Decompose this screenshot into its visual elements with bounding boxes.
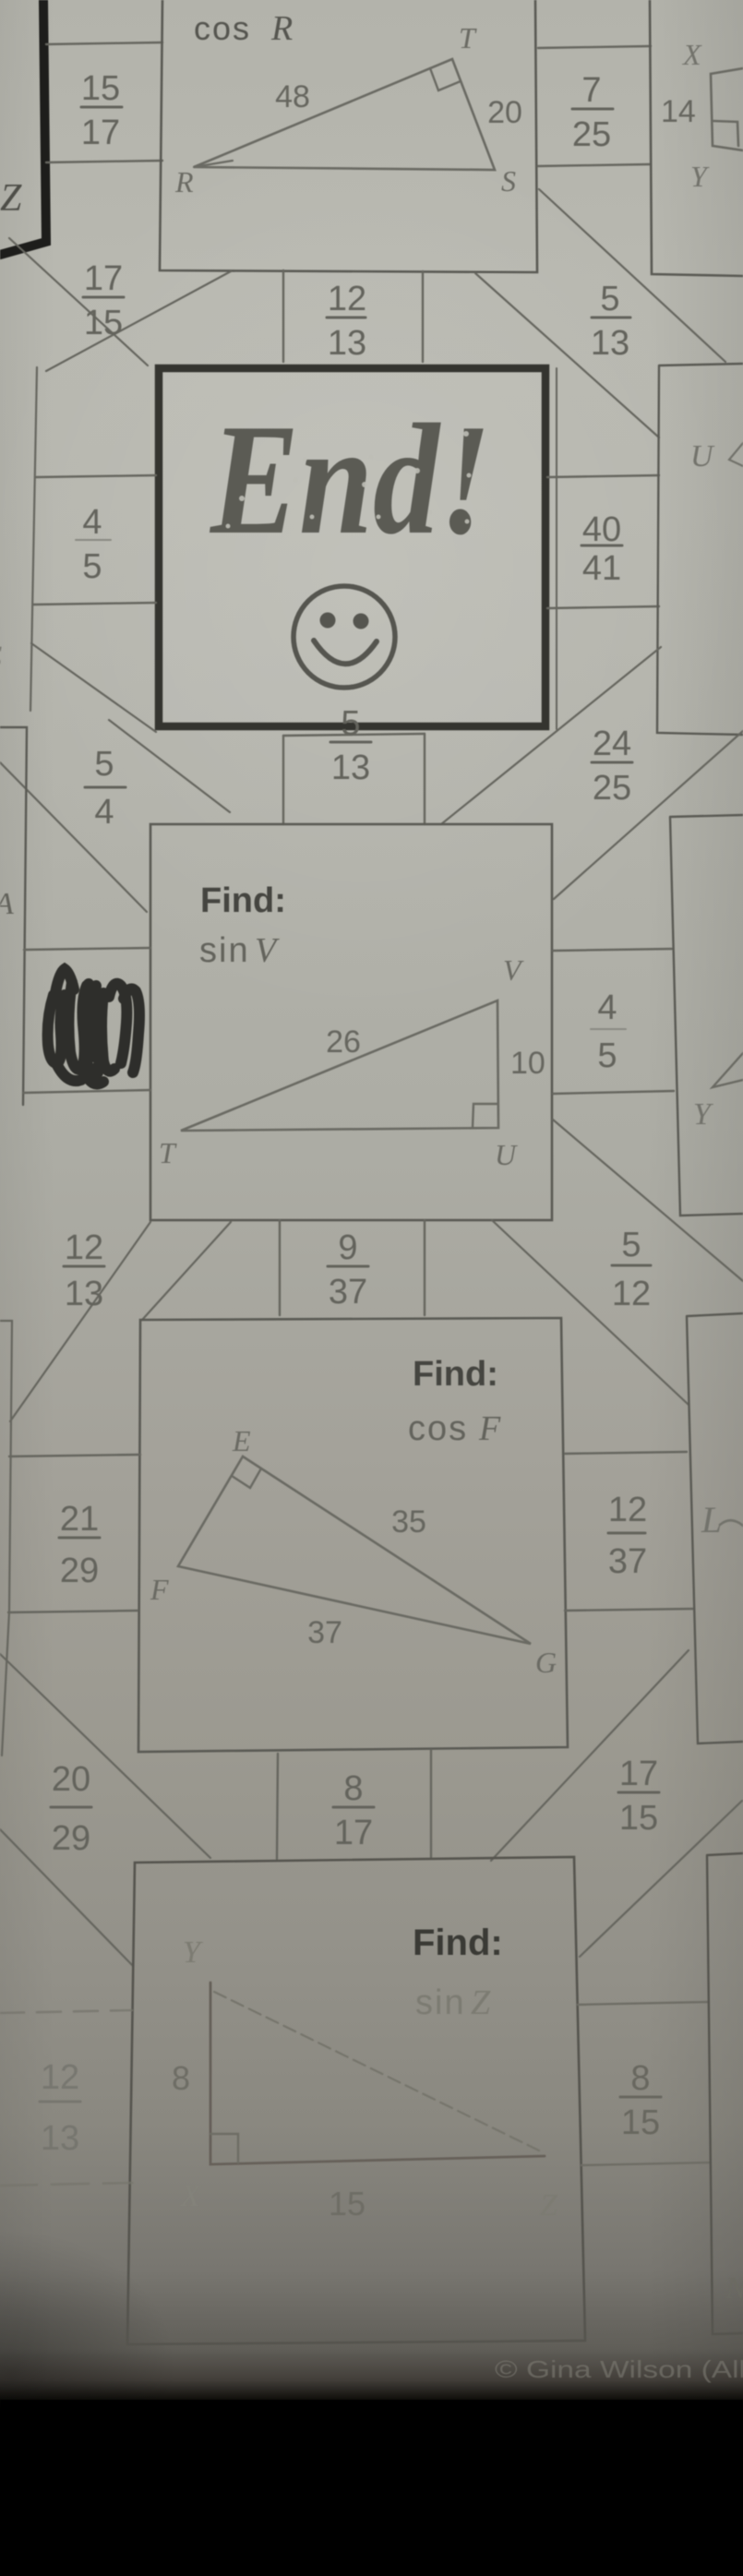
svg-text:7: 7 <box>581 71 601 110</box>
svg-text:29: 29 <box>52 1819 90 1858</box>
svg-text:37: 37 <box>307 1615 342 1650</box>
svg-text:8: 8 <box>630 2059 650 2098</box>
svg-text:41: 41 <box>582 549 621 588</box>
svg-text:17: 17 <box>334 1814 373 1852</box>
svg-text:13: 13 <box>328 324 366 363</box>
svg-text:Z: Z <box>540 2188 558 2223</box>
svg-text:4: 4 <box>597 988 617 1027</box>
svg-text:29: 29 <box>60 1552 99 1590</box>
svg-text:17: 17 <box>81 114 120 152</box>
svg-text:5: 5 <box>94 745 114 784</box>
svg-text:5: 5 <box>600 280 619 318</box>
svg-text:sin: sin <box>415 1983 466 2022</box>
svg-text:5: 5 <box>341 704 360 743</box>
svg-text:24: 24 <box>593 725 631 763</box>
svg-text:Z: Z <box>471 1983 491 2022</box>
svg-text:12: 12 <box>608 1491 647 1529</box>
svg-text:48: 48 <box>275 79 310 114</box>
svg-text:© Gina Wilson (All: © Gina Wilson (All <box>495 2355 743 2383</box>
svg-text:T: T <box>459 21 477 54</box>
svg-text:5: 5 <box>597 1036 617 1075</box>
svg-text:12: 12 <box>328 280 366 318</box>
svg-text:cos: cos <box>194 9 251 47</box>
svg-text:Find:: Find: <box>200 881 286 920</box>
svg-text:T: T <box>159 1136 177 1169</box>
svg-text:sin: sin <box>199 931 250 970</box>
svg-text:5: 5 <box>621 1226 641 1264</box>
svg-text:25: 25 <box>572 115 611 154</box>
svg-text:37: 37 <box>329 1273 367 1312</box>
svg-text:12: 12 <box>612 1275 651 1313</box>
svg-text:S: S <box>0 639 2 676</box>
svg-text:35: 35 <box>391 1504 426 1540</box>
svg-text:12: 12 <box>41 2058 79 2097</box>
svg-text:4: 4 <box>82 503 102 542</box>
svg-text:F: F <box>478 1409 501 1448</box>
svg-text:E: E <box>232 1424 251 1457</box>
svg-text:X: X <box>681 38 702 71</box>
svg-text:14: 14 <box>661 94 696 129</box>
svg-text:S: S <box>501 164 516 198</box>
svg-text:8: 8 <box>172 2059 190 2097</box>
svg-text:13: 13 <box>331 749 370 787</box>
svg-text:20: 20 <box>487 95 522 130</box>
svg-text:4: 4 <box>94 793 114 832</box>
svg-text:10: 10 <box>510 1046 545 1081</box>
svg-text:Y: Y <box>690 160 710 193</box>
svg-text:G: G <box>535 1646 557 1679</box>
svg-text:15: 15 <box>84 304 123 342</box>
svg-text:37: 37 <box>608 1542 647 1581</box>
svg-text:5: 5 <box>82 547 102 586</box>
svg-text:R: R <box>174 165 194 198</box>
svg-text:V: V <box>503 953 524 987</box>
svg-text:Y: Y <box>183 1935 203 1970</box>
svg-text:26: 26 <box>326 1024 361 1060</box>
svg-text:F: F <box>150 1573 169 1606</box>
svg-text:R: R <box>270 9 293 48</box>
svg-text:V: V <box>255 931 280 970</box>
svg-text:21: 21 <box>60 1500 99 1539</box>
svg-text:17: 17 <box>84 259 123 298</box>
svg-text:15: 15 <box>81 69 120 108</box>
svg-text:17: 17 <box>619 1755 658 1793</box>
svg-text:X: X <box>179 2179 201 2213</box>
svg-text:25: 25 <box>593 769 631 808</box>
svg-text:8: 8 <box>343 1769 363 1808</box>
svg-text:L: L <box>701 1499 722 1540</box>
svg-text:13: 13 <box>591 324 629 363</box>
svg-text:20: 20 <box>52 1760 90 1799</box>
svg-text:Find:: Find: <box>413 1923 503 1963</box>
svg-text:Y: Y <box>693 1097 713 1132</box>
svg-text:U: U <box>690 439 715 473</box>
svg-text:9: 9 <box>338 1228 357 1267</box>
svg-text:Find:: Find: <box>413 1355 498 1394</box>
svg-text:13: 13 <box>65 1275 103 1313</box>
svg-text:A: A <box>0 887 14 921</box>
svg-text:Z: Z <box>0 177 22 220</box>
svg-text:15: 15 <box>619 1799 658 1838</box>
svg-text:15: 15 <box>621 2103 660 2142</box>
svg-text:U: U <box>495 1138 518 1171</box>
svg-text:15: 15 <box>329 2185 366 2223</box>
svg-text:N: N <box>725 2271 743 2306</box>
svg-text:40: 40 <box>582 510 621 549</box>
svg-text:cos: cos <box>408 1409 468 1448</box>
svg-text:End!: End! <box>209 392 491 568</box>
svg-text:13: 13 <box>41 2119 79 2158</box>
svg-text:12: 12 <box>65 1228 103 1267</box>
